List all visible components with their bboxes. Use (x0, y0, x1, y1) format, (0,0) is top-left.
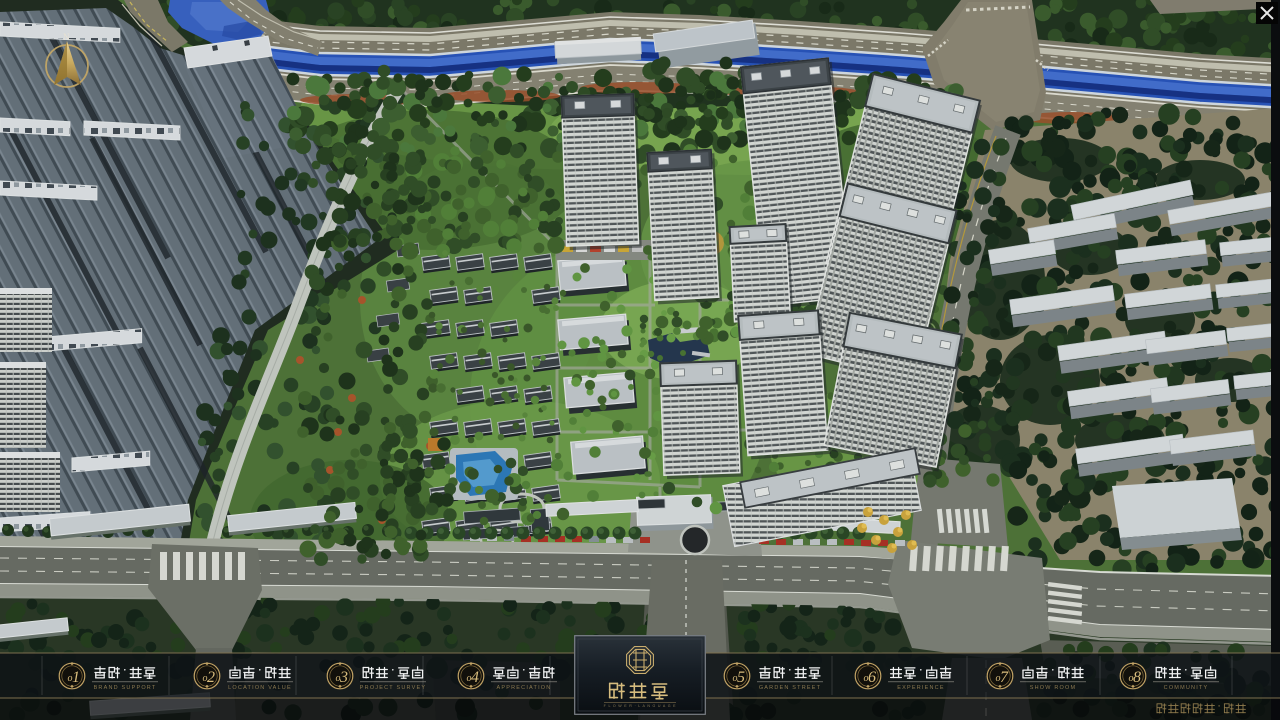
svg-text:2: 2 (207, 669, 215, 686)
svg-text:3: 3 (339, 669, 348, 686)
svg-text:SHOW ROOM: SHOW ROOM (1030, 685, 1077, 691)
svg-text:APPRECIATION: APPRECIATION (497, 685, 552, 691)
svg-text:1: 1 (72, 669, 80, 686)
svg-text:5: 5 (737, 669, 745, 686)
svg-text:EXPERIENCE: EXPERIENCE (897, 685, 944, 691)
svg-text:BRAND SUPPORT: BRAND SUPPORT (94, 685, 157, 691)
svg-text:8: 8 (1133, 669, 1141, 686)
svg-text:6: 6 (868, 669, 876, 686)
svg-text:LOCATION VALUE: LOCATION VALUE (228, 685, 292, 691)
svg-text:GARDEN STREET: GARDEN STREET (759, 685, 821, 691)
svg-text:PROJECT SURVEY: PROJECT SURVEY (360, 685, 426, 691)
svg-text:F L O W E R · L A N G U A G E: F L O W E R · L A N G U A G E (604, 704, 677, 708)
svg-text:7: 7 (1000, 669, 1009, 686)
svg-text:COMMUNITY: COMMUNITY (1164, 685, 1209, 691)
svg-text:4: 4 (471, 669, 479, 686)
